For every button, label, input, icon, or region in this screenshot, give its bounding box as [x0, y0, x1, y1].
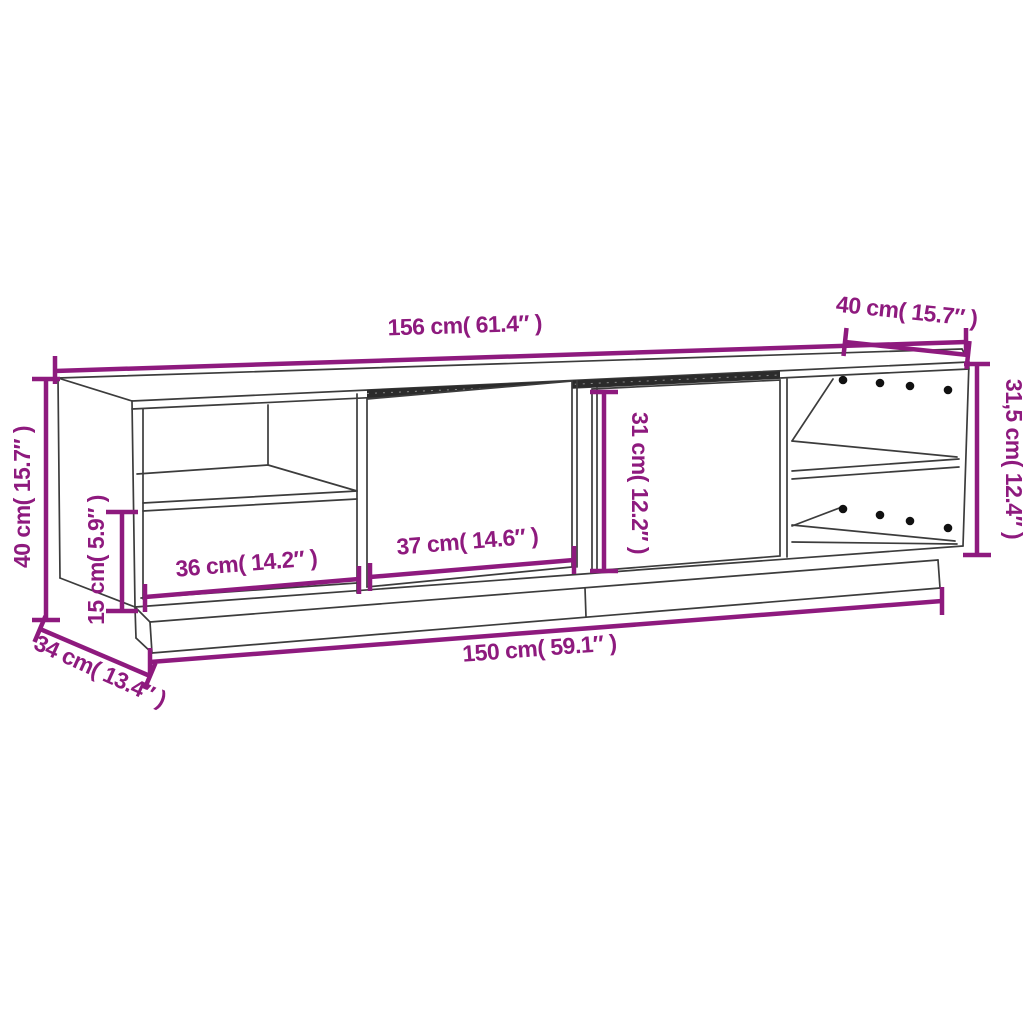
- dim-bottom-width: 150 cm( 59.1″ ): [150, 587, 942, 676]
- dim-shelf-width: 36 cm( 14.2″ ): [145, 544, 359, 612]
- tv-stand-dimension-diagram: 156 cm( 61.4″ ) 40 cm( 15.7″ ) 31,5 cm( …: [0, 0, 1024, 1024]
- dim-top-depth-label: 40 cm( 15.7″ ): [835, 291, 979, 332]
- shelf-pin-holes: [839, 376, 953, 533]
- right-shelf: [792, 441, 959, 479]
- right-compartment: [787, 362, 969, 557]
- dim-plinth-height-label: 15 cm( 5.9″ ): [83, 495, 109, 625]
- left-shelf: [137, 465, 357, 511]
- diagram-canvas: 156 cm( 61.4″ ) 40 cm( 15.7″ ) 31,5 cm( …: [0, 0, 1024, 1024]
- dim-top-width: 156 cm( 61.4″ ): [55, 310, 966, 384]
- dim-top-depth: 40 cm( 15.7″ ): [835, 291, 979, 369]
- right-front-edge: [963, 362, 969, 546]
- dim-right-height: 31,5 cm( 12.4″ ): [963, 364, 1024, 555]
- dim-right-height-label: 31,5 cm( 12.4″ ): [1001, 379, 1024, 539]
- dim-top-width-label: 156 cm( 61.4″ ): [387, 310, 542, 341]
- door-right: [592, 380, 780, 571]
- dim-left-height-label: 40 cm( 15.7″ ): [9, 426, 35, 568]
- dim-door-height-label: 31 cm( 12.2″ ): [627, 412, 653, 554]
- dim-left-height: 40 cm( 15.7″ ): [9, 379, 60, 620]
- dim-shelf-width-label: 36 cm( 14.2″ ): [174, 544, 318, 581]
